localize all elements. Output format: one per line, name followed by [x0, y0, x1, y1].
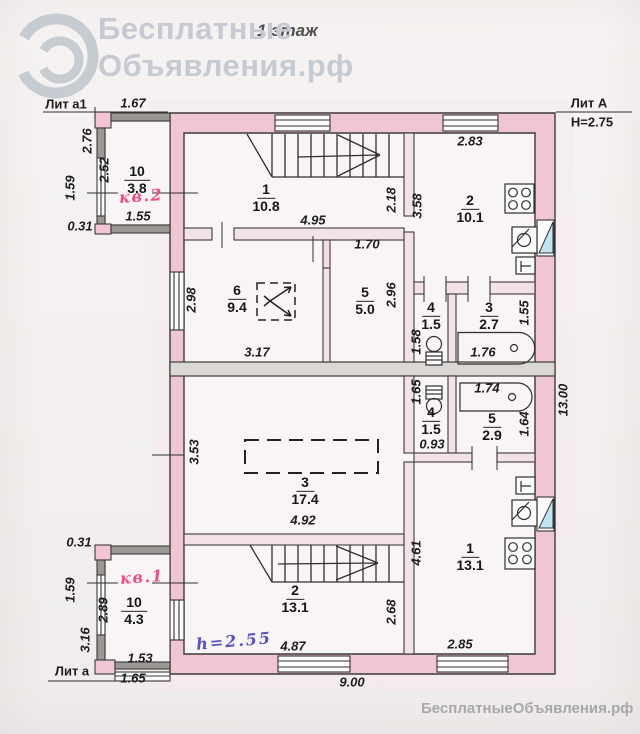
- dim-9-00: 9.00: [339, 675, 364, 690]
- dim-1-58: 1.58: [409, 329, 424, 354]
- room-area: 13.1: [456, 558, 483, 574]
- room-2-top: 2 10.1: [456, 193, 483, 225]
- room-number: 4: [422, 405, 440, 422]
- dim-0-93: 0.93: [419, 437, 444, 452]
- room-area: 17.4: [291, 492, 318, 508]
- heater-bottom-icon: [516, 477, 535, 494]
- dim-2-96: 2.96: [384, 282, 399, 307]
- room-4-bottom: 4 1.5: [421, 405, 440, 437]
- room-area: 3.8: [127, 181, 146, 197]
- room-3-top: 3 2.7: [479, 300, 498, 332]
- dim-1-76: 1.76: [470, 345, 495, 360]
- room-number: 6: [228, 283, 246, 300]
- lit-a1-label: Лит а1: [45, 97, 87, 112]
- dim-4-92: 4.92: [290, 513, 315, 528]
- dim-2-52: 2.52: [97, 157, 112, 182]
- lit-a-label: Лит а: [55, 664, 89, 679]
- room-area: 9.4: [227, 300, 246, 316]
- room-1-top: 1 10.8: [252, 182, 279, 214]
- room-area: 13.1: [281, 600, 308, 616]
- room-number: 3: [480, 300, 498, 317]
- room-area: 4.3: [124, 612, 143, 628]
- dim-4-87: 4.87: [280, 639, 305, 654]
- dim-1-55-annex: 1.55: [125, 209, 150, 224]
- room-number: 5: [356, 285, 374, 302]
- brand-ring-icon: [4, 2, 104, 106]
- dim-2-76: 2.76: [80, 128, 95, 153]
- dim-1-55-right: 1.55: [517, 300, 532, 325]
- room-number: 5: [483, 411, 501, 428]
- room-area: 1.5: [421, 422, 440, 438]
- room-number: 4: [422, 300, 440, 317]
- dim-3-58: 3.58: [410, 193, 425, 218]
- scanned-floor-plan-page: 1 этаж Бесплатные Объявления.рф Бесплатн…: [0, 0, 640, 734]
- room-area: 10.1: [456, 210, 483, 226]
- room-number: 10: [124, 164, 150, 181]
- apartment-1-label: кв.1: [119, 566, 164, 588]
- room-number: 2: [461, 193, 479, 210]
- dim-0-31-bottom: 0.31: [66, 535, 91, 550]
- dim-1-74: 1.74: [474, 381, 499, 396]
- dim-1-59-top: 1.59: [63, 175, 78, 200]
- dim-4-61: 4.61: [409, 540, 424, 565]
- sink-top-icon: [512, 227, 537, 253]
- dim-2-18: 2.18: [384, 187, 399, 212]
- dim-1-65-left: 1.65: [409, 379, 424, 404]
- room-area: 2.7: [479, 317, 498, 333]
- dim-2-85: 2.85: [447, 637, 472, 652]
- lit-A-label: Лит А: [571, 96, 607, 111]
- room-5-bottom: 5 2.9: [482, 411, 501, 443]
- room-10-bottom: 10 4.3: [121, 595, 147, 627]
- room-number: 3: [296, 475, 314, 492]
- dim-2-89: 2.89: [96, 597, 111, 622]
- room-3-big: 3 17.4: [291, 475, 318, 507]
- room-area: 1.5: [421, 317, 440, 333]
- dim-1-53: 1.53: [127, 651, 152, 666]
- height-label: Н=2.75: [571, 115, 613, 130]
- sink-bottom-icon: [512, 500, 537, 526]
- room-5-top: 5 5.0: [355, 285, 374, 317]
- stove-bottom-icon: [505, 538, 535, 569]
- brand-line2: Объявления.рф: [98, 47, 354, 84]
- room-4-top: 4 1.5: [421, 300, 440, 332]
- dim-0-31-top: 0.31: [67, 219, 92, 234]
- dim-1-59-bottom: 1.59: [63, 577, 78, 602]
- dim-2-68: 2.68: [384, 599, 399, 624]
- dim-2-98: 2.98: [184, 287, 199, 312]
- room-1-bottom: 1 13.1: [456, 541, 483, 573]
- room-2-bottom: 2 13.1: [281, 583, 308, 615]
- brand-watermark: Бесплатные Объявления.рф: [98, 10, 354, 84]
- room-number: 10: [121, 595, 147, 612]
- room-10-top: 10 3.8: [124, 164, 150, 196]
- dim-3-16: 3.16: [78, 627, 93, 652]
- dim-1-65-bottom: 1.65: [120, 671, 145, 686]
- room-area: 10.8: [252, 199, 279, 215]
- dim-3-17: 3.17: [244, 345, 269, 360]
- footer-watermark: БесплатныеОбъявления.рф: [421, 700, 633, 717]
- dim-13-00: 13.00: [556, 384, 571, 417]
- dim-1-64: 1.64: [517, 411, 532, 436]
- room-number: 1: [461, 541, 479, 558]
- floor-plan-drawing: [0, 0, 640, 734]
- dim-4-95: 4.95: [300, 213, 325, 228]
- heater-top-icon: [516, 257, 535, 274]
- dim-1-70: 1.70: [354, 237, 379, 252]
- dim-3-53: 3.53: [187, 439, 202, 464]
- room-number: 1: [257, 182, 275, 199]
- stove-top-icon: [505, 184, 534, 213]
- dim-1-67: 1.67: [120, 96, 145, 111]
- room-area: 2.9: [482, 428, 501, 444]
- room-6: 6 9.4: [227, 283, 246, 315]
- room-area: 5.0: [355, 302, 374, 318]
- dim-2-83: 2.83: [457, 134, 482, 149]
- room-number: 2: [286, 583, 304, 600]
- brand-line1: Бесплатные: [98, 10, 354, 47]
